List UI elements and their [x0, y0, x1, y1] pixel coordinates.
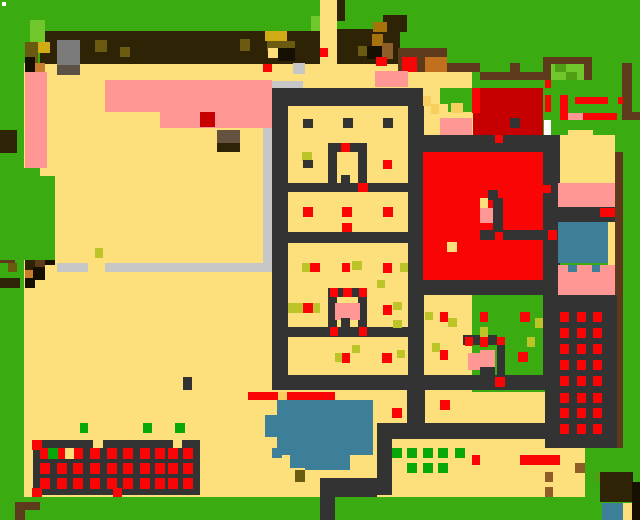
seed-row-1	[407, 448, 417, 458]
tile-sandDark	[431, 104, 439, 114]
left-berry-dots	[168, 463, 178, 474]
tile-red	[383, 263, 392, 273]
tile-red	[358, 183, 368, 192]
right-berry-dots	[593, 408, 602, 418]
tile-sand	[447, 242, 457, 252]
left-berry-dots	[73, 478, 83, 489]
tile-wall	[497, 345, 505, 375]
tile-red	[583, 113, 617, 120]
tile-sand	[480, 198, 488, 208]
right-berry-dots	[577, 376, 586, 386]
tile-yg	[535, 318, 543, 328]
tile-grass	[440, 88, 473, 104]
right-berry-dots	[560, 312, 569, 322]
right-berry-dots	[577, 424, 586, 434]
tile-yg	[313, 303, 320, 313]
right-berry-dots	[577, 408, 586, 418]
tile-wall	[510, 118, 520, 128]
tile-olive	[25, 42, 38, 53]
left-berry-dots	[140, 478, 150, 489]
tile-woodLight	[545, 472, 553, 482]
tile-red	[341, 143, 350, 152]
tile-wall	[488, 190, 498, 200]
tile-grassLight	[311, 16, 320, 31]
tile-sand	[623, 503, 632, 520]
tile-woodLight	[575, 463, 585, 473]
tile-wall	[343, 118, 353, 128]
tile-yg	[448, 318, 457, 327]
tile-red	[545, 95, 551, 112]
left-berry-dots	[57, 463, 67, 474]
tile-wall	[383, 118, 393, 128]
left-berry-dots	[73, 463, 83, 474]
tile-red	[303, 207, 313, 217]
seed-row-1	[392, 448, 402, 458]
right-berry-dots	[593, 376, 602, 386]
right-berry-dots	[577, 360, 586, 370]
tile-gold	[265, 31, 287, 41]
tile-blue	[277, 400, 373, 455]
tile-path	[105, 263, 272, 272]
tile-red	[320, 48, 328, 57]
right-berry-dots	[593, 312, 602, 322]
tile-wall	[377, 423, 392, 495]
tile-red	[113, 488, 122, 497]
tile-red	[342, 207, 352, 217]
tile-yg	[397, 350, 405, 358]
tile-wall	[423, 280, 543, 295]
tile-path	[263, 128, 272, 263]
tile-yg	[302, 263, 310, 272]
tile-red	[383, 207, 393, 217]
left-berry-dots	[183, 478, 193, 489]
tile-grass	[24, 176, 55, 260]
tile-yg	[480, 327, 488, 337]
tile-green2	[48, 448, 58, 459]
tile-red	[548, 230, 557, 240]
right-berry-dots	[593, 360, 602, 370]
seed-row-1	[438, 448, 448, 458]
tile-stone2	[217, 130, 240, 143]
tile-red	[543, 185, 551, 193]
tile-wall	[423, 135, 560, 152]
tile-red	[560, 95, 568, 120]
tile-blue	[592, 265, 600, 272]
tile-grassDark	[555, 64, 566, 72]
tile-yg	[288, 303, 303, 313]
tile-pink	[568, 113, 583, 120]
tile-olive	[95, 40, 107, 52]
tile-pink	[25, 72, 47, 168]
tile-green2	[143, 423, 152, 433]
left-berry-dots	[123, 448, 133, 459]
tile-red	[618, 97, 623, 104]
tile-red	[495, 377, 505, 387]
tile-red	[383, 305, 392, 315]
tile-red	[575, 97, 608, 104]
tile-pink	[105, 80, 160, 112]
tile-wood	[35, 260, 45, 267]
tile-red	[495, 135, 503, 143]
seed-row-1	[423, 448, 433, 458]
tile-rockBase	[57, 65, 80, 75]
tile-wall	[320, 478, 377, 497]
tile-blue	[568, 265, 577, 272]
tile-woodLight	[545, 487, 553, 497]
tile-red	[383, 160, 392, 169]
left-berry-dots	[123, 478, 133, 489]
tile-red	[310, 263, 320, 272]
tile-red	[402, 57, 417, 72]
left-berry-dots	[90, 448, 100, 459]
tile-black	[632, 482, 640, 497]
right-berry-dots	[577, 328, 586, 338]
tile-copper	[425, 57, 447, 72]
tile-red	[545, 80, 551, 88]
left-berry-dots	[73, 448, 83, 459]
tile-wall	[408, 106, 424, 390]
right-berry-dots	[593, 393, 602, 403]
tile-black	[632, 497, 640, 520]
tile-yg	[527, 337, 535, 347]
tile-olive	[295, 470, 305, 482]
left-berry-dots	[123, 463, 133, 474]
tile-red	[343, 288, 352, 297]
tile-red	[480, 312, 488, 322]
tile-pink	[468, 353, 480, 370]
tile-olive	[120, 47, 130, 57]
tile-red	[423, 152, 480, 233]
left-berry-dots	[155, 478, 165, 489]
left-berry-dots	[90, 478, 100, 489]
tile-red	[440, 312, 448, 322]
tile-white	[2, 2, 6, 6]
tile-rock	[57, 40, 80, 65]
seed-row-1	[455, 448, 465, 458]
tile-red	[330, 288, 338, 297]
tile-red	[472, 88, 480, 113]
tile-wood	[543, 64, 551, 80]
tile-pink	[440, 118, 472, 135]
tile-soil	[0, 130, 17, 153]
tile-soil	[600, 472, 633, 502]
tile-wall	[303, 119, 313, 128]
tile-sandDark	[278, 392, 287, 400]
left-berry-dots	[90, 463, 100, 474]
tile-soil	[217, 143, 240, 152]
left-berry-dots	[107, 463, 117, 474]
tile-black	[278, 48, 295, 61]
tile-red	[495, 232, 503, 240]
left-berry-dots	[40, 463, 50, 474]
tile-yg	[425, 312, 433, 320]
tile-black	[45, 260, 55, 265]
tile-red	[440, 350, 448, 360]
tile-yg	[95, 248, 103, 258]
tile-red	[520, 455, 560, 465]
right-berry-dots	[560, 344, 569, 354]
tile-grass	[24, 168, 40, 176]
tile-red	[359, 288, 367, 297]
right-berry-dots	[560, 328, 569, 338]
seed-row-2	[423, 463, 433, 473]
tile-red	[472, 455, 480, 465]
seed-row-2	[438, 463, 448, 473]
tile-grassDark	[566, 72, 577, 80]
tile-pink	[375, 71, 408, 87]
tile-yg	[400, 263, 408, 272]
right-berry-dots	[560, 424, 569, 434]
tile-amber	[373, 22, 387, 32]
tile-red	[287, 392, 335, 400]
tile-pink	[480, 350, 495, 368]
tile-wood	[15, 510, 25, 520]
tile-wall	[377, 423, 545, 439]
tile-red	[32, 488, 42, 497]
tile-wall	[272, 88, 423, 106]
tile-red	[359, 327, 367, 336]
seed-row-2	[407, 463, 417, 473]
left-berry-dots	[57, 478, 67, 489]
left-berry-dots	[168, 448, 178, 459]
left-berry-dots	[140, 463, 150, 474]
right-berry-dots	[560, 408, 569, 418]
tile-sandDark	[451, 103, 463, 113]
right-berry-dots	[560, 360, 569, 370]
tile-olive	[8, 263, 17, 272]
tile-sand	[173, 440, 182, 448]
tile-wall	[272, 88, 288, 390]
right-berry-dots	[577, 344, 586, 354]
tile-pink	[558, 265, 617, 295]
tile-red	[248, 392, 278, 400]
right-berry-dots	[593, 424, 602, 434]
tile-wall	[320, 497, 335, 520]
tile-wall	[303, 160, 313, 168]
tile-wall	[488, 335, 497, 345]
tile-wood	[584, 64, 592, 80]
tile-sand	[268, 48, 278, 58]
right-berry-dots	[593, 328, 602, 338]
tile-wall	[480, 367, 495, 377]
tile-yg	[432, 343, 440, 352]
tile-wood	[510, 63, 520, 80]
tile-path	[293, 63, 305, 74]
tile-red	[342, 353, 350, 363]
tile-blue	[602, 503, 623, 520]
tile-blue	[265, 415, 277, 437]
tile-red	[480, 337, 488, 347]
tile-darkRed	[200, 112, 215, 127]
tile-red	[518, 352, 528, 362]
tile-yg	[377, 280, 385, 288]
tile-wall	[341, 175, 350, 185]
tile-yg	[393, 302, 402, 310]
tile-red	[480, 152, 543, 260]
right-berry-dots	[593, 344, 602, 354]
right-berry-dots	[560, 393, 569, 403]
left-berry-dots	[140, 448, 150, 459]
left-berry-dots	[155, 463, 165, 474]
tile-green2	[175, 423, 185, 433]
tile-pink	[558, 183, 617, 207]
left-berry-dots	[168, 478, 178, 489]
tile-wall	[288, 232, 424, 243]
right-berry-dots	[577, 312, 586, 322]
tile-sand	[65, 448, 74, 459]
tile-sand	[568, 130, 593, 143]
tile-wall	[288, 327, 424, 337]
tile-blue	[558, 222, 608, 263]
left-berry-dots	[107, 448, 117, 459]
tile-gold	[38, 42, 50, 53]
tile-red	[376, 57, 387, 66]
tile-pink	[160, 80, 272, 128]
left-berry-dots	[183, 463, 193, 474]
tile-wall	[407, 390, 425, 427]
tile-wood	[15, 502, 40, 510]
tile-red	[392, 408, 402, 418]
tile-grassLight	[30, 20, 45, 42]
tile-red	[342, 223, 352, 232]
tile-wall	[183, 377, 192, 390]
tile-blue	[305, 455, 350, 470]
tile-black	[25, 278, 35, 288]
tile-red	[423, 260, 543, 280]
tile-pink	[480, 208, 493, 223]
tile-yg	[352, 345, 360, 353]
tile-olive	[240, 39, 250, 51]
tile-red	[382, 353, 392, 363]
tile-green2	[80, 423, 88, 433]
left-berry-dots	[183, 448, 193, 459]
right-berry-dots	[577, 393, 586, 403]
left-berry-dots	[155, 448, 165, 459]
tile-yg	[393, 320, 402, 328]
tile-soil	[0, 278, 20, 288]
tile-red	[263, 64, 272, 72]
tile-path	[57, 263, 88, 272]
tile-red	[303, 303, 313, 313]
right-berry-dots	[560, 376, 569, 386]
tile-blue	[272, 448, 282, 458]
tile-red	[342, 263, 350, 272]
game-map[interactable]	[0, 0, 640, 520]
tile-red	[440, 400, 450, 410]
tile-wall	[341, 318, 350, 332]
tile-white	[544, 120, 551, 135]
tile-sand	[93, 438, 103, 448]
tile-wood	[622, 112, 640, 120]
tile-yg	[352, 261, 362, 270]
tile-wall	[480, 230, 545, 240]
tile-red	[330, 327, 338, 336]
tile-red	[465, 337, 473, 346]
tile-sandDark	[423, 96, 431, 106]
tile-soil	[337, 0, 345, 21]
tile-red	[520, 312, 530, 322]
